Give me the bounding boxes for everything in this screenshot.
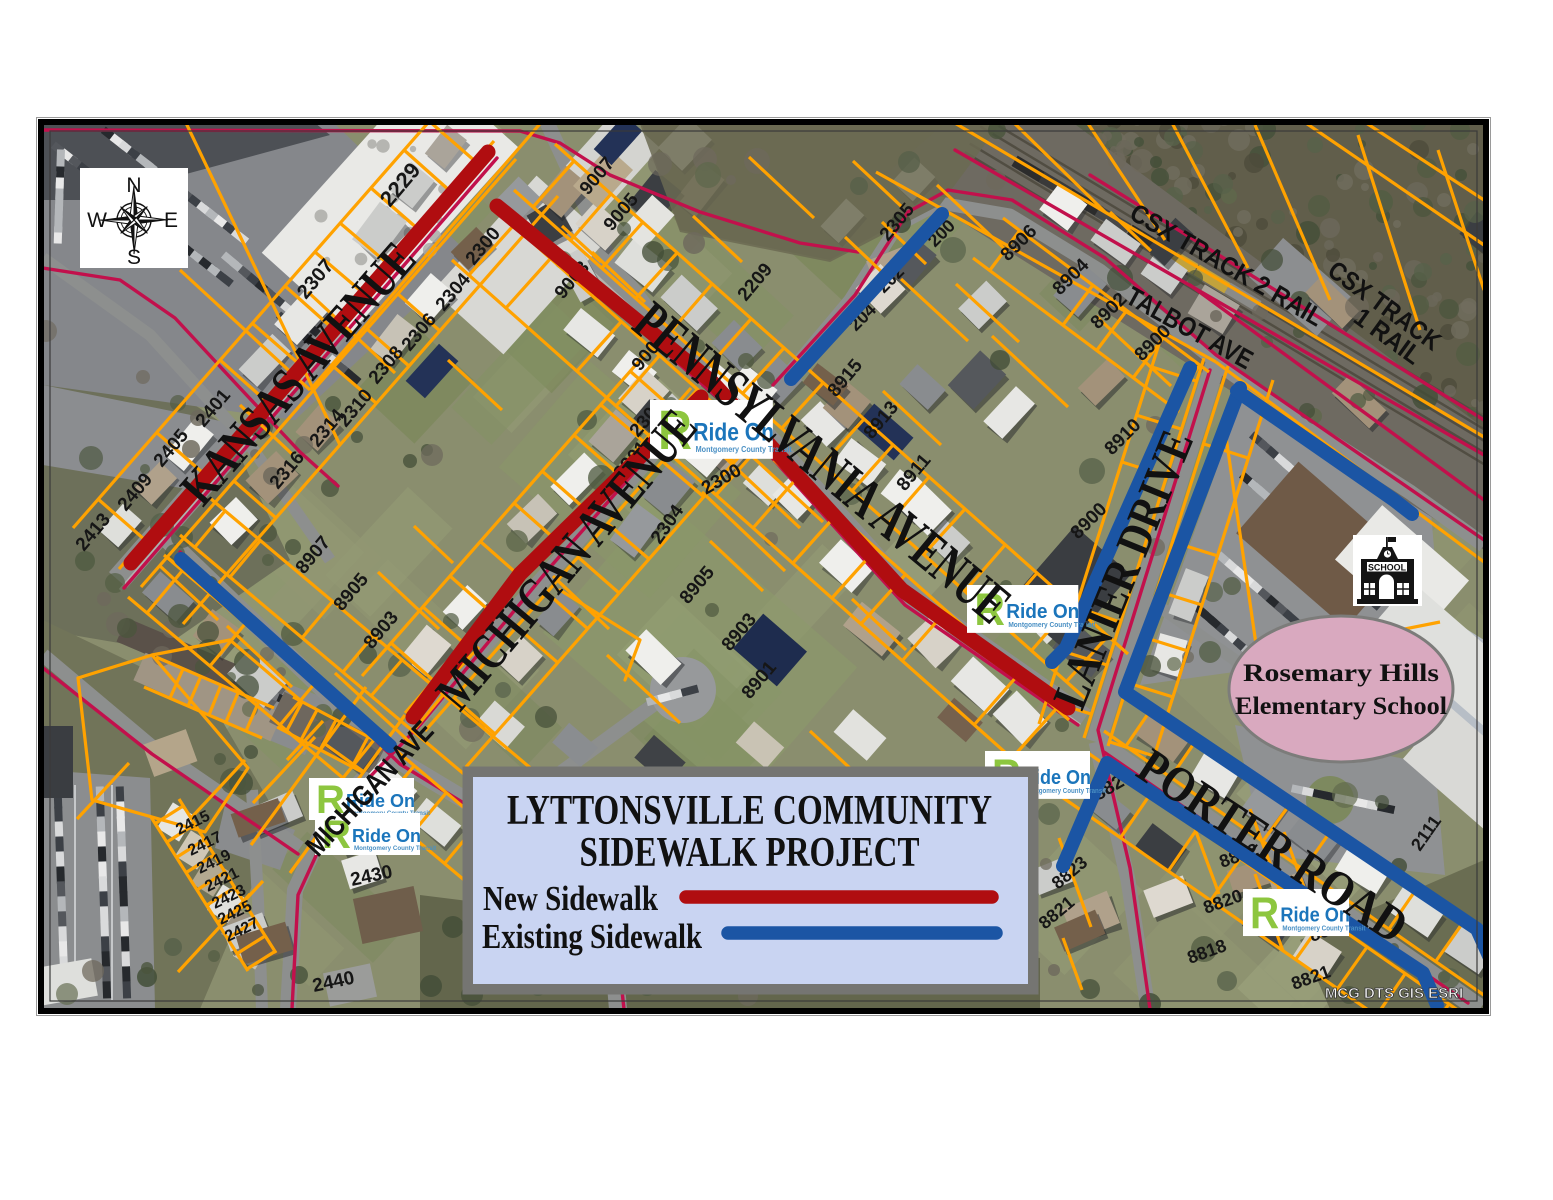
svg-text:LYTTONSVILLE COMMUNITY: LYTTONSVILLE COMMUNITY <box>507 788 992 834</box>
svg-text:Existing Sidewalk: Existing Sidewalk <box>482 917 702 956</box>
svg-text:R: R <box>1250 888 1279 938</box>
svg-text:SIDEWALK PROJECT: SIDEWALK PROJECT <box>580 830 920 876</box>
svg-text:MCG DTS GIS ESRI: MCG DTS GIS ESRI <box>1325 985 1463 1002</box>
svg-text:Rosemary Hills: Rosemary Hills <box>1243 660 1439 687</box>
svg-text:Ride On: Ride On <box>1006 600 1079 623</box>
svg-text:Ride On: Ride On <box>352 826 421 846</box>
svg-text:E: E <box>164 209 178 232</box>
svg-text:Montgomery County Transit: Montgomery County Transit <box>354 845 436 852</box>
svg-text:S: S <box>127 246 141 269</box>
svg-text:New Sidewalk: New Sidewalk <box>483 879 658 918</box>
svg-text:SCHOOL: SCHOOL <box>1368 563 1406 574</box>
svg-text:N: N <box>126 174 141 197</box>
svg-text:Elementary School: Elementary School <box>1235 693 1447 720</box>
svg-text:W: W <box>87 209 107 232</box>
